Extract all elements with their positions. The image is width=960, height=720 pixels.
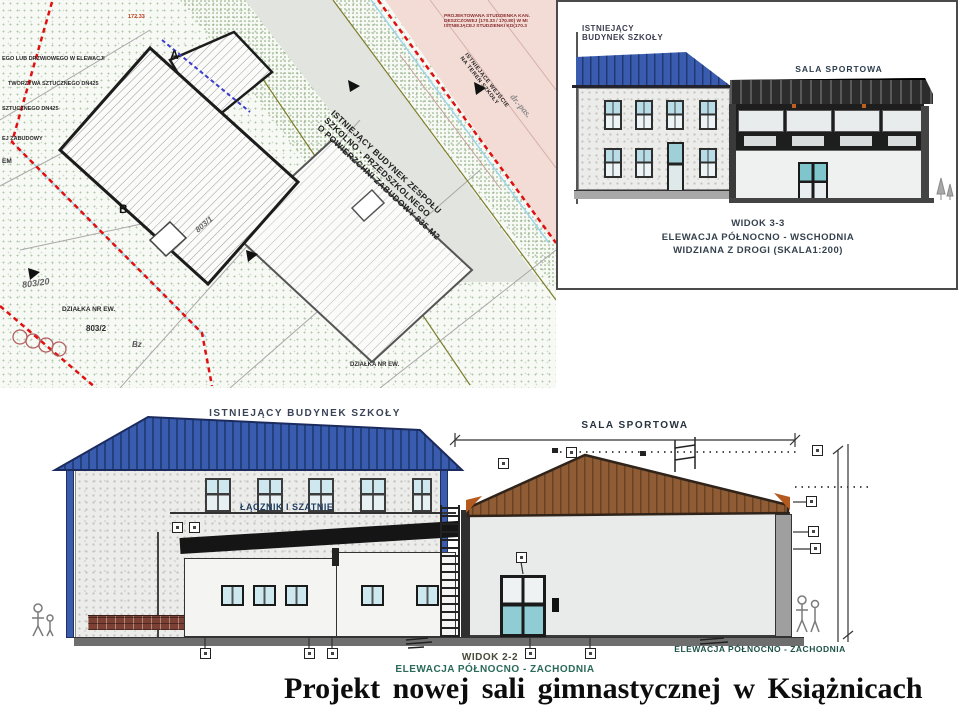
callout-box: [200, 648, 211, 659]
presentation-slide: EGO LUB DRZWIOWEGO W ELEWACJI TWORZYWA S…: [0, 0, 960, 720]
callout-box: [189, 522, 200, 533]
margin-note: EGO LUB DRZWIOWEGO W ELEWACJI: [2, 56, 105, 62]
window: [604, 100, 622, 130]
caption-line: WIDOK 3-3: [598, 218, 918, 229]
callout-box: [808, 526, 819, 537]
callout-box: [498, 458, 509, 469]
side-elevation-label: ELEWACJA PÓŁNOCNO - ZACHODNIA: [640, 644, 880, 654]
bottom-parcel-label: DZIAŁKA NR EW.: [350, 362, 399, 368]
callout-box: [806, 496, 817, 507]
callout-box: [566, 447, 577, 458]
window: [666, 100, 684, 130]
window: [699, 148, 717, 178]
clerestory-window: [738, 110, 784, 132]
bollard: [552, 598, 559, 612]
existing-school-label-33: ISTNIEJĄCY BUDYNEK SZKOŁY: [582, 24, 663, 42]
spot-elevation: 172.33: [128, 14, 145, 20]
view-3-3-panel: ISTNIEJĄCY BUDYNEK SZKOŁY SALA SPORTOWA: [556, 0, 958, 290]
roof-vent: [792, 104, 796, 108]
school-base-33: [574, 190, 734, 199]
clerestory-window: [792, 136, 824, 146]
clerestory-window: [786, 110, 832, 132]
hall-roof-33: [730, 78, 933, 104]
clerestory-window: [744, 136, 776, 146]
drain-note-line: ISTNIEJĄCEJ STUDZIENKI KD(170.3: [444, 24, 530, 29]
view-2-2-caption-line1: WIDOK 2-2: [420, 652, 560, 663]
label-line: BUDYNEK SZKOŁY: [582, 33, 663, 42]
hall-column: [729, 104, 736, 202]
parcel-label: DZIAŁKA NR EW.: [62, 306, 115, 313]
hall-column: [921, 106, 929, 202]
window: [699, 100, 717, 130]
parcel-number: 803/2: [86, 324, 106, 333]
hall-label-33: SALA SPORTOWA: [774, 64, 904, 74]
window: [635, 148, 653, 178]
person-figure: [32, 604, 53, 636]
clerestory-window: [840, 136, 872, 146]
terrain-code: Bz: [132, 340, 142, 349]
clerestory-window: [888, 136, 916, 146]
callout-box: [516, 552, 527, 563]
clerestory-window: [834, 110, 880, 132]
view-2-2: ISTNIEJĄCY BUDYNEK SZKOŁY SALA SPORTOWA …: [0, 392, 960, 692]
margin-note: EJ ZABUDOWY: [2, 136, 43, 142]
page-title: Projekt nowej sali gimnastycznej w Książ…: [284, 672, 956, 706]
site-plan: EGO LUB DRZWIOWEGO W ELEWACJI TWORZYWA S…: [0, 0, 556, 388]
callout-box: [304, 648, 315, 659]
person-figure: [796, 596, 819, 632]
hall-roof-22: [466, 448, 790, 516]
school-roof-22: [55, 417, 462, 470]
hall-wall-33: [734, 150, 924, 200]
hall-door-33: [798, 162, 828, 200]
hall-clerestory-33: [734, 104, 924, 150]
callout-box: [812, 445, 823, 456]
margin-note: SZTUCZNEGO DN425: [2, 106, 59, 112]
section-marker-a: A: [170, 48, 179, 62]
school-roof-33: [574, 50, 734, 88]
margin-note: TWORZYWA SZTUCZNEGO DN425: [8, 81, 99, 87]
window: [635, 100, 653, 130]
callout-box: [810, 543, 821, 554]
trees-icon: [932, 172, 956, 202]
callout-box: [172, 522, 183, 533]
roof-structure: [675, 437, 695, 472]
caption-line: WIDZIANA Z DROGI (SKALA1:200): [598, 245, 918, 256]
school-door-33: [667, 142, 684, 192]
hall-base-33: [729, 198, 934, 203]
roof-vent: [862, 104, 866, 108]
callout-box: [585, 648, 596, 659]
window: [604, 148, 622, 178]
callout-box: [327, 648, 338, 659]
caption-line: ELEWACJA PÓŁNOCNO - WSCHODNIA: [598, 232, 918, 243]
label-line: ISTNIEJĄCY: [582, 24, 663, 33]
drain-note: PROJEKTOWANA STUDZIENKA KAN. DESZCZOWEJ …: [444, 14, 530, 29]
view-3-3-caption: WIDOK 3-3 ELEWACJA PÓŁNOCNO - WSCHODNIA …: [598, 218, 918, 256]
section-marker-b: B: [119, 202, 128, 216]
site-circle-chain: [13, 330, 66, 356]
clerestory-window: [882, 110, 922, 132]
margin-note: EM: [2, 158, 12, 165]
